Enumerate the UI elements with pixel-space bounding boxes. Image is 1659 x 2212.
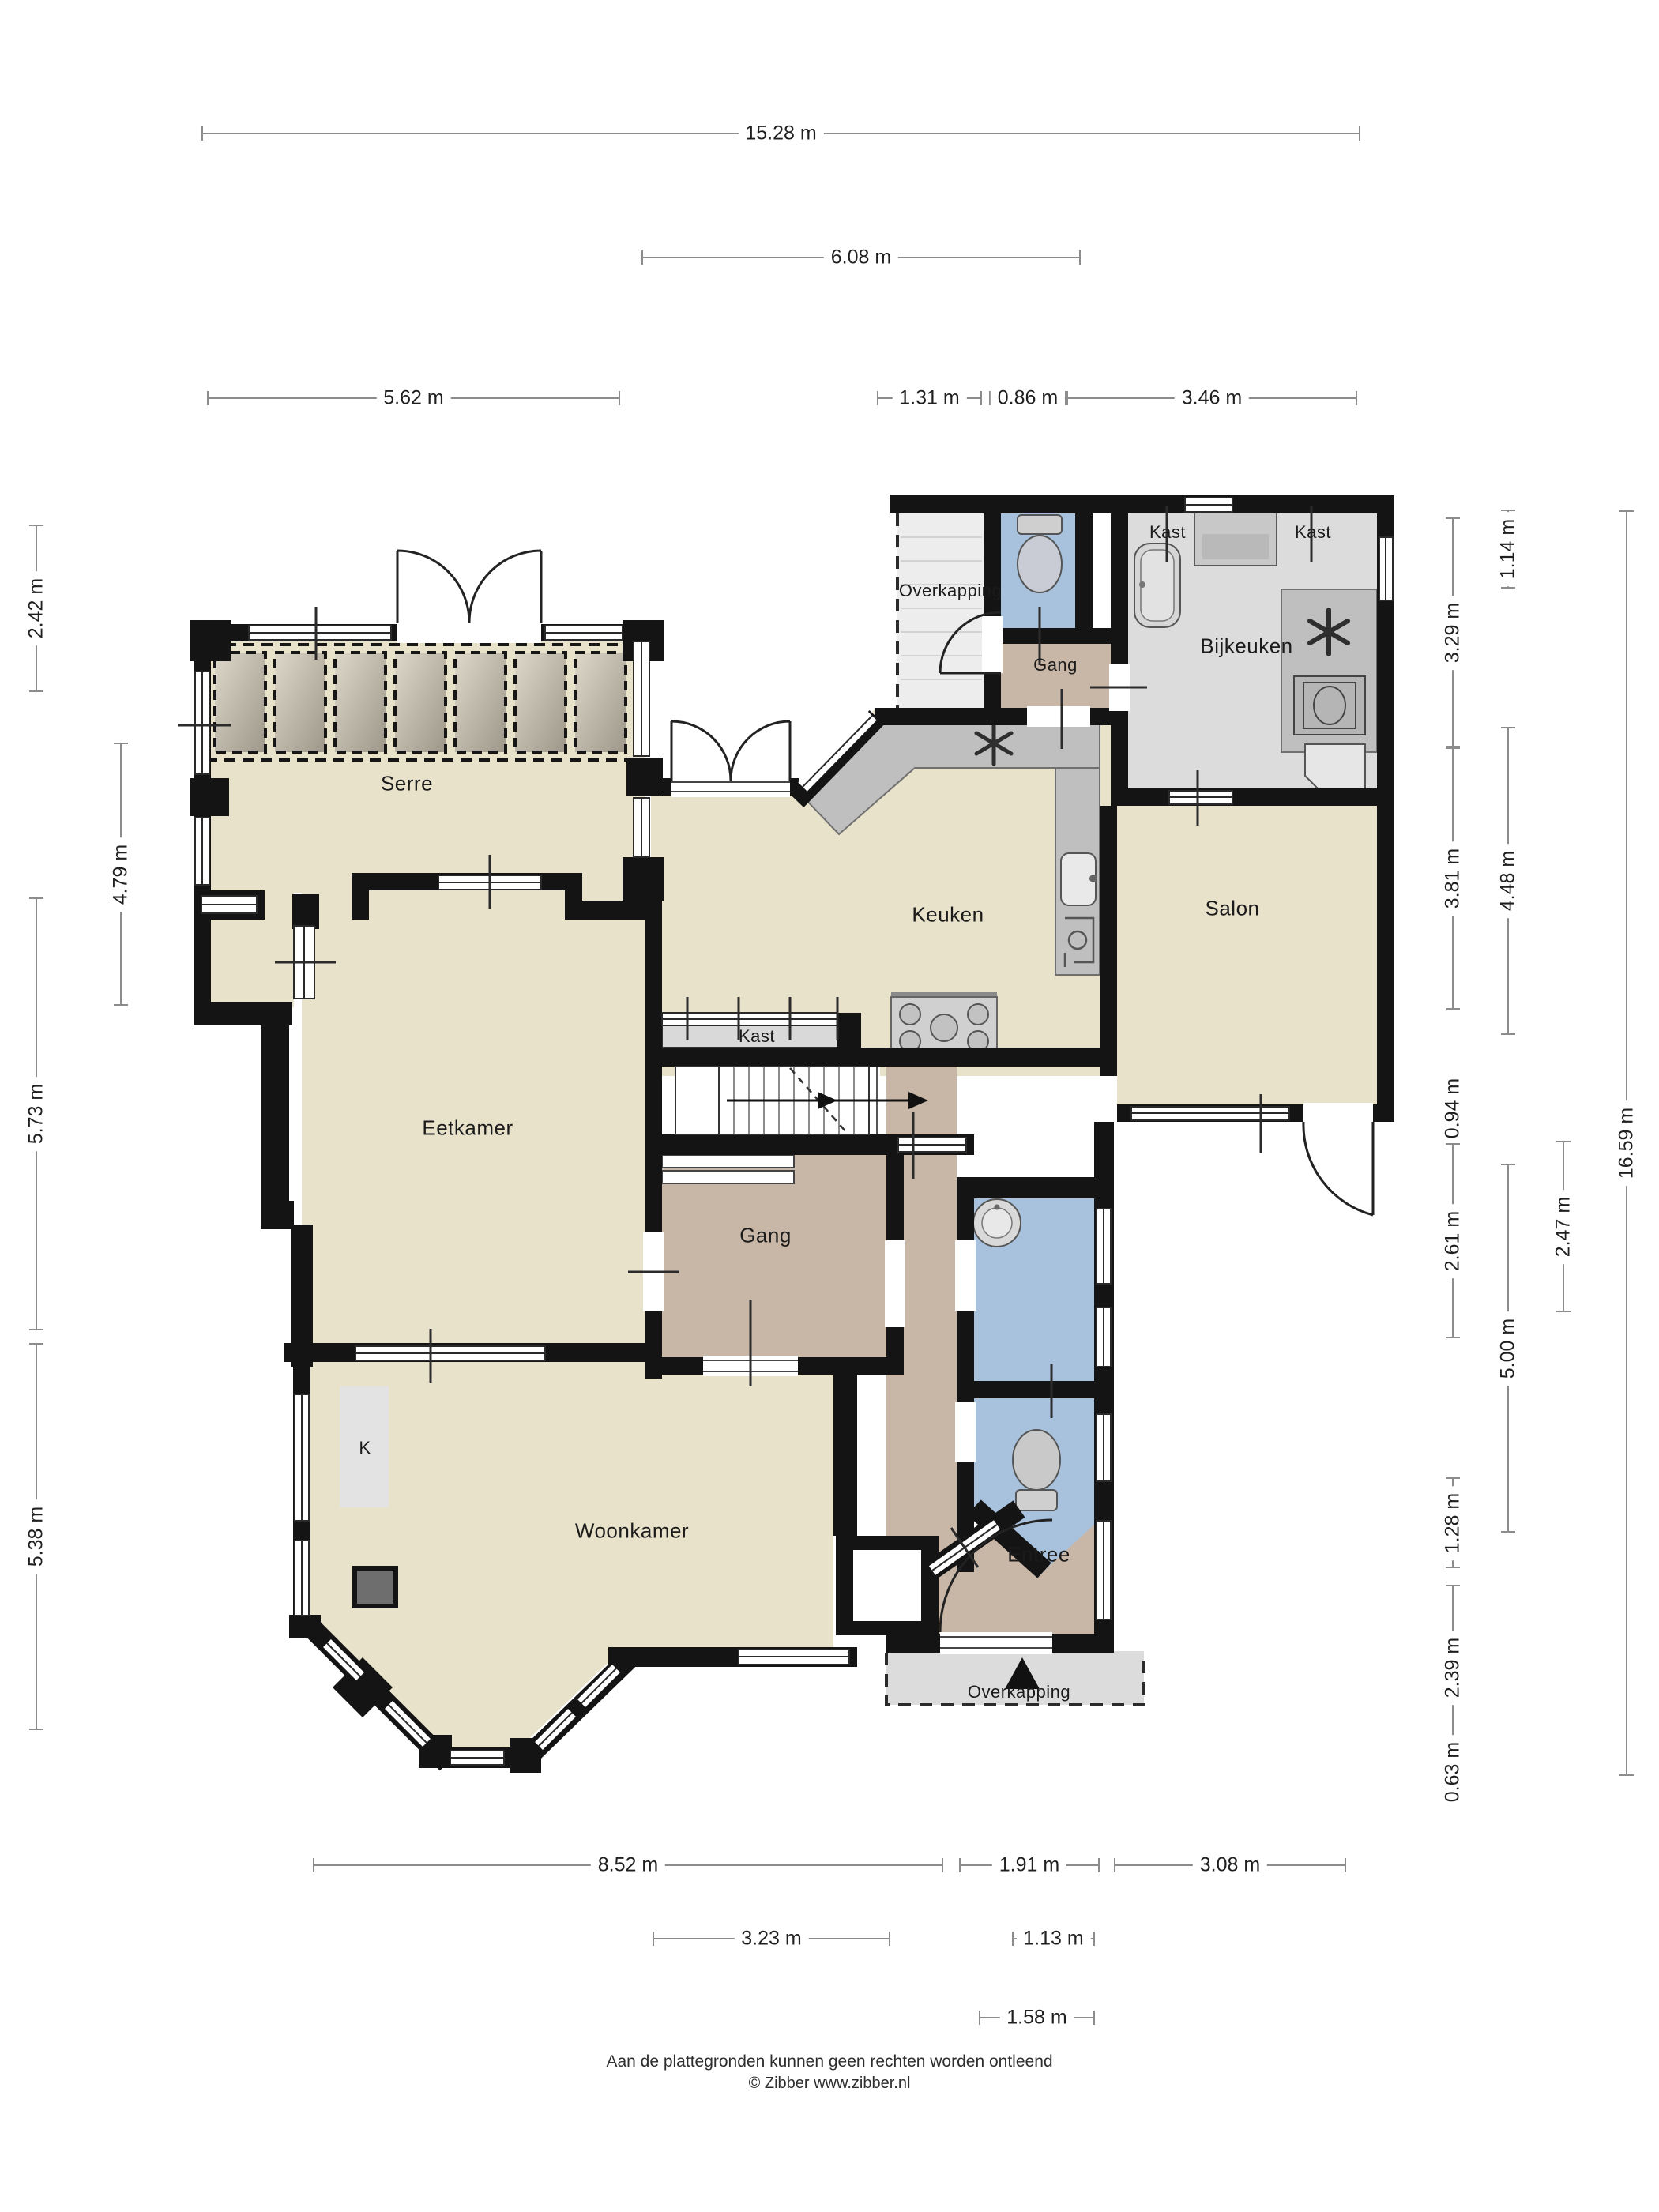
footer-disclaimer: Aan de plattegronden kunnen geen rechten… xyxy=(0,2052,1659,2071)
dimension-bottom-1-91: 1.91 m xyxy=(959,1858,1100,1872)
floorplan-drawing xyxy=(0,0,1659,2212)
dimension-top-3-46: 3.46 m xyxy=(1066,391,1357,405)
room-label-gang-midden: Gang xyxy=(739,1224,792,1248)
dimension-bottom-1-13: 1.13 m xyxy=(1012,1932,1095,1946)
dimension-right-1-28: 1.28 m xyxy=(1446,1477,1460,1568)
dimension-left-5-73: 5.73 m xyxy=(29,897,43,1330)
dimension-right-3-29: 3.29 m xyxy=(1446,517,1460,747)
kitchen-sink-icon xyxy=(1061,853,1097,905)
bathtub-icon xyxy=(1134,544,1180,627)
dimension-bottom-8-52: 8.52 m xyxy=(313,1858,943,1872)
dimension-right-2-47: 2.47 m xyxy=(1556,1141,1571,1312)
dimension-right-total: 16.59 m xyxy=(1619,510,1634,1776)
salon-door xyxy=(1303,1122,1373,1215)
dimension-left-2-42: 2.42 m xyxy=(29,525,43,692)
dimension-right-0-63: 0.63 m xyxy=(1446,1750,1460,1793)
footer-copyright: © Zibber www.zibber.nl xyxy=(0,2075,1659,2093)
room-label-kast-rechts: Kast xyxy=(1295,522,1331,543)
room-label-woonkamer: Woonkamer xyxy=(575,1519,689,1544)
serre-double-door-left xyxy=(397,551,469,623)
dimension-top-6-08: 6.08 m xyxy=(641,250,1081,265)
room-label-serre: Serre xyxy=(381,772,433,796)
room-label-k: K xyxy=(359,1438,371,1458)
dimension-bottom-3-23: 3.23 m xyxy=(653,1932,890,1946)
dimension-right-1-14: 1.14 m xyxy=(1501,510,1515,589)
dimension-bottom-3-08: 3.08 m xyxy=(1114,1858,1346,1872)
dimension-right-3-81: 3.81 m xyxy=(1446,747,1460,1010)
room-label-overkapping-boven: Overkapping xyxy=(899,581,1002,601)
chimney-inner xyxy=(853,1550,921,1621)
room-label-keuken: Keuken xyxy=(912,903,984,927)
toilet-icon xyxy=(1013,1430,1060,1510)
dimension-top-total: 15.28 m xyxy=(201,126,1360,141)
room-label-gang-boven: Gang xyxy=(1033,655,1078,675)
washbasin-icon xyxy=(973,1199,1021,1247)
dimension-top-5-62: 5.62 m xyxy=(207,391,620,405)
room-label-kast-midden: Kast xyxy=(739,1026,775,1047)
dimension-right-0-94: 0.94 m xyxy=(1446,1076,1460,1141)
dimension-bottom-1-58: 1.58 m xyxy=(979,2011,1095,2025)
dimension-top-1-31: 1.31 m xyxy=(877,391,982,405)
room-label-kast-links: Kast xyxy=(1149,522,1186,543)
dimension-top-0-86: 0.86 m xyxy=(989,391,1066,405)
room-label-overkapping-onder: Overkapping xyxy=(968,1682,1070,1702)
dimension-right-4-48: 4.48 m xyxy=(1501,727,1515,1035)
room-label-salon: Salon xyxy=(1206,897,1260,921)
toilet-icon xyxy=(1018,515,1062,592)
room-label-entree: Entree xyxy=(1007,1543,1070,1567)
dimension-left-5-38: 5.38 m xyxy=(29,1343,43,1730)
dimension-right-2-61: 2.61 m xyxy=(1446,1143,1460,1338)
room-label-bijkeuken: Bijkeuken xyxy=(1200,634,1292,659)
room-label-eetkamer: Eetkamer xyxy=(422,1116,513,1141)
floorplan-page: Serre Eetkamer Woonkamer Keuken Salon Bi… xyxy=(0,0,1659,2212)
appliance-icon xyxy=(1294,676,1365,735)
serre-double-door-right xyxy=(469,551,541,623)
dimension-right-5-00: 5.00 m xyxy=(1501,1164,1515,1533)
dimension-right-2-39: 2.39 m xyxy=(1446,1585,1460,1750)
bay-block xyxy=(355,1568,396,1606)
dimension-left-4-79: 4.79 m xyxy=(114,743,128,1006)
